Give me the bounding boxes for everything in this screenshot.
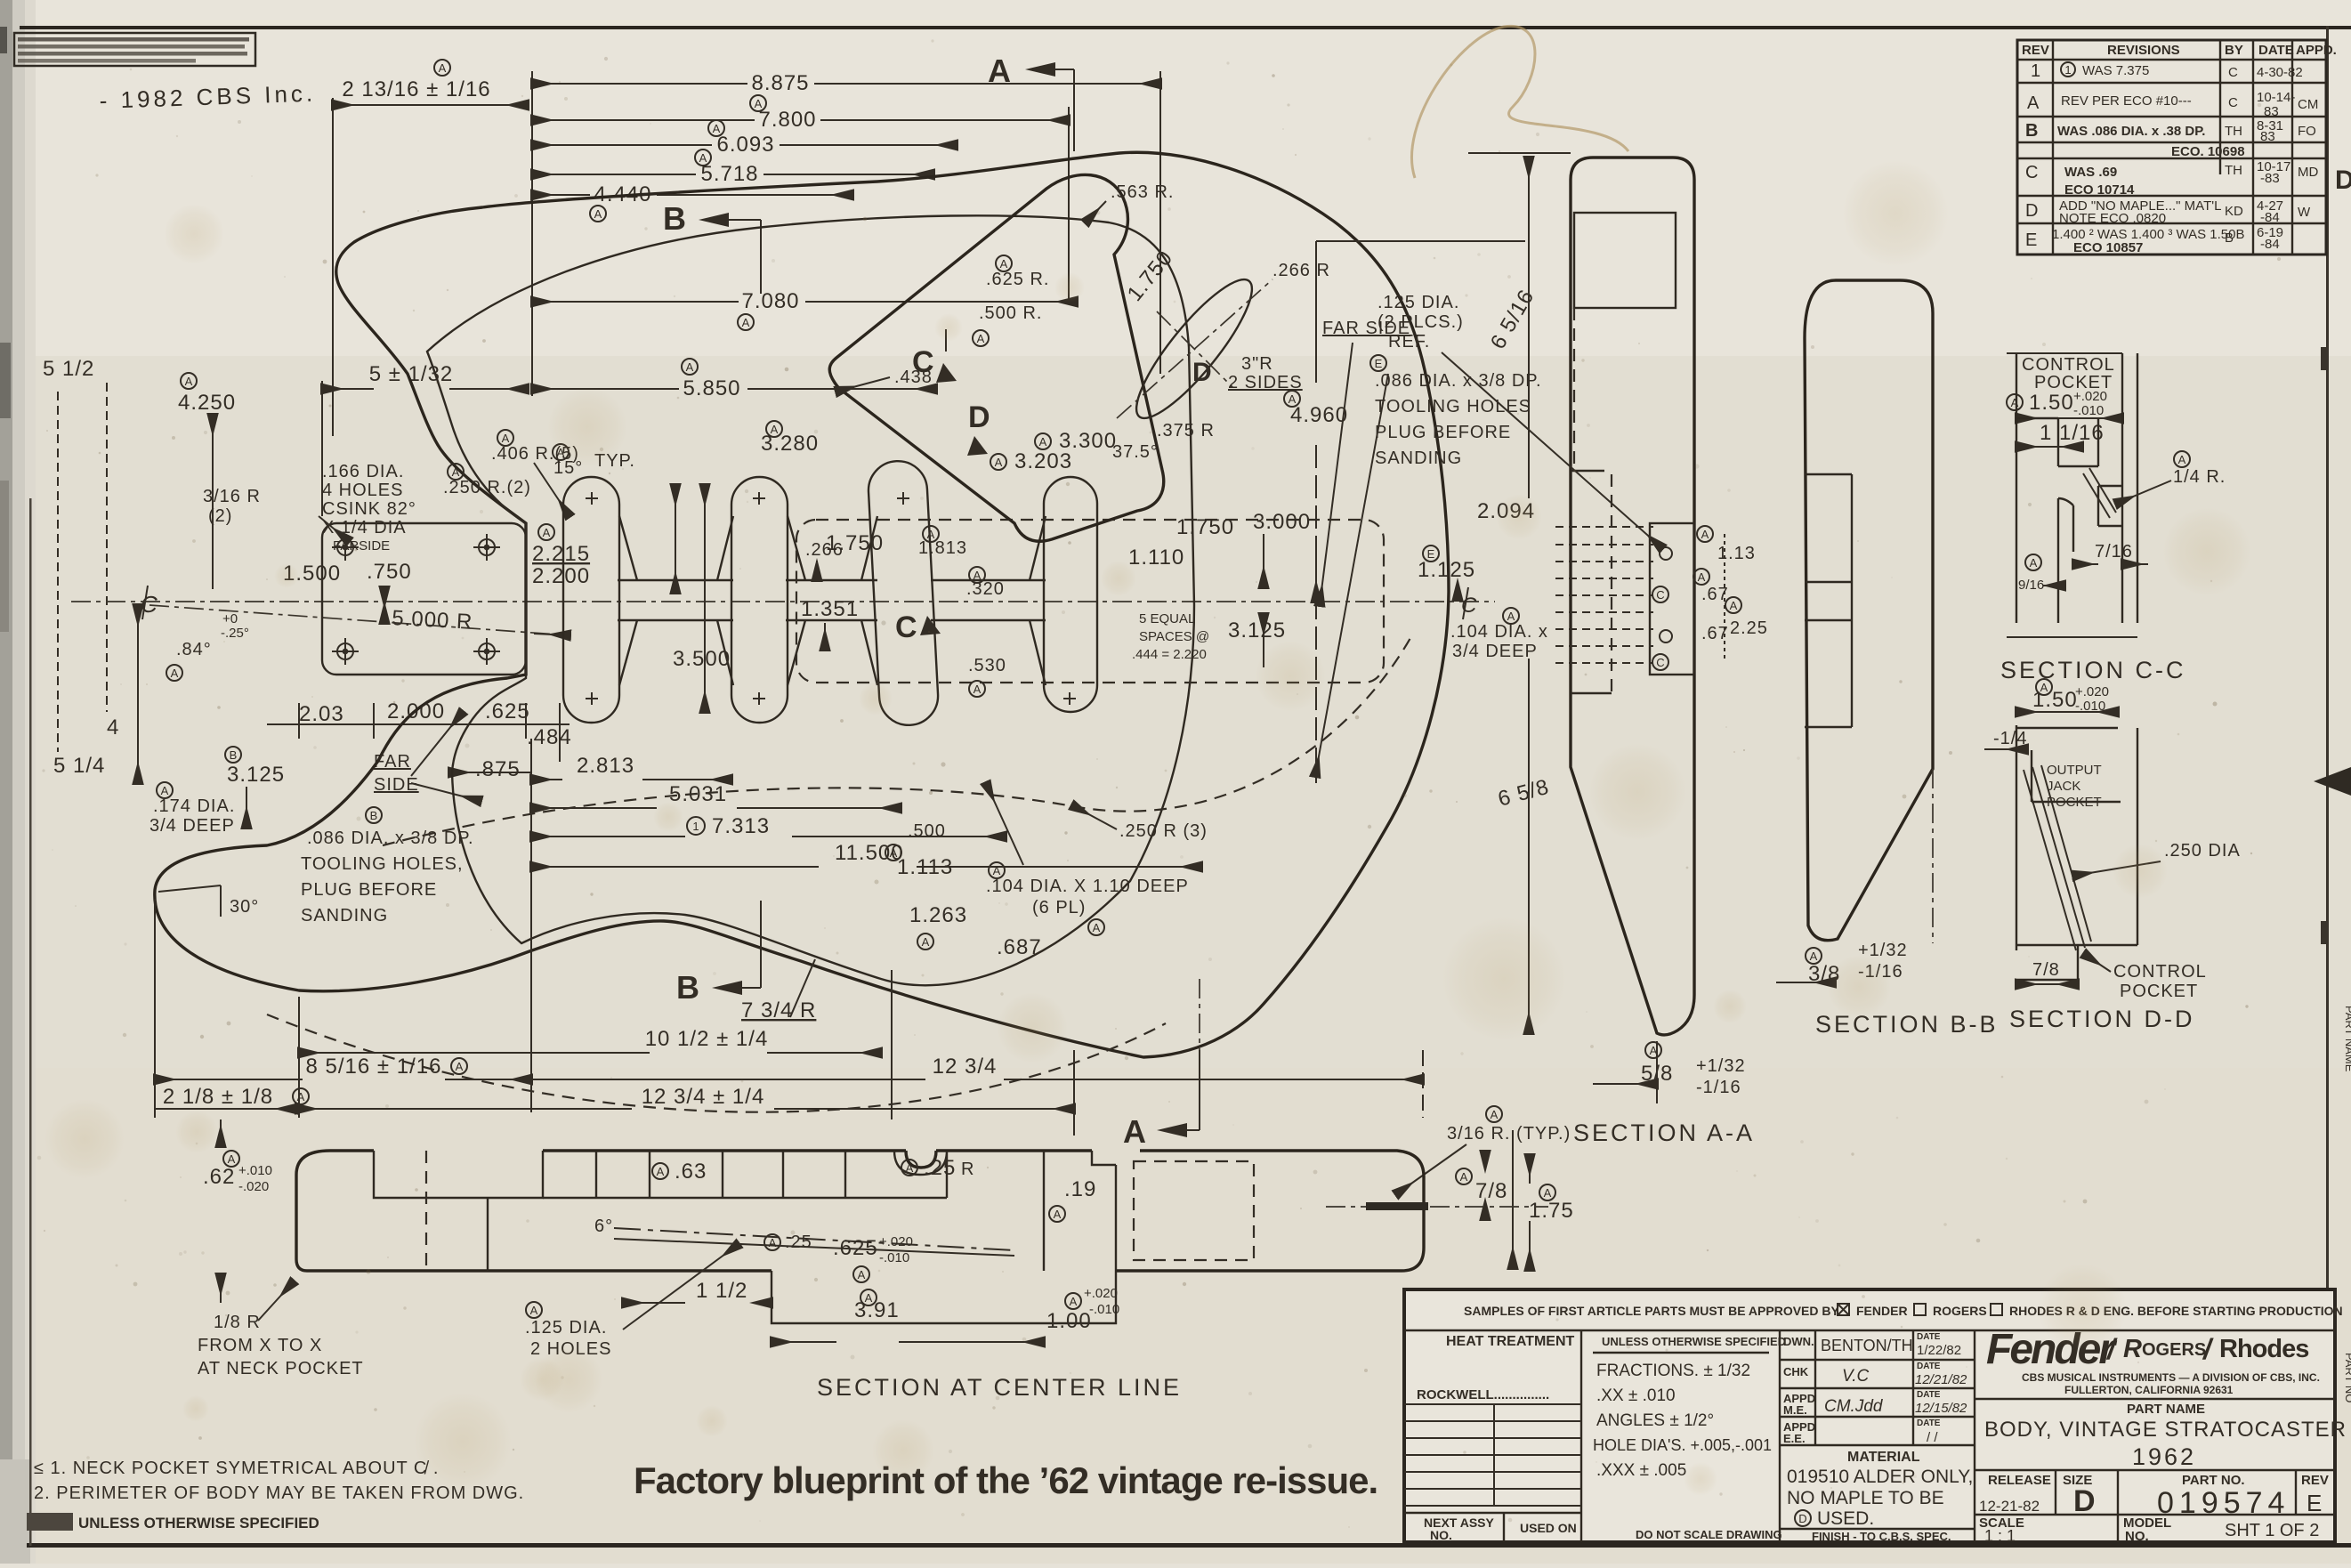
svg-text:CBS MUSICAL INSTRUMENTS — A DI: CBS MUSICAL INSTRUMENTS — A DIVISION OF … [2022, 1371, 2320, 1384]
svg-text:UNLESS OTHERWISE SPECIFIED: UNLESS OTHERWISE SPECIFIED [78, 1515, 319, 1532]
svg-text:FO: FO [2298, 124, 2316, 139]
svg-text:.875: .875 [475, 757, 521, 781]
svg-text:REV: REV [2301, 1473, 2329, 1488]
svg-text:4: 4 [107, 715, 119, 740]
svg-text:11.500: 11.500 [835, 841, 904, 865]
svg-text:DATE: DATE [1917, 1390, 1941, 1400]
svg-text:7 3/4 R: 7 3/4 R [741, 998, 816, 1022]
svg-text:B: B [230, 748, 238, 762]
svg-text:FRACTIONS. ± 1/32: FRACTIONS. ± 1/32 [1596, 1362, 1750, 1380]
svg-text:.375 R: .375 R [1157, 421, 1215, 440]
svg-text:REV PER ECO #10---: REV PER ECO #10--- [2061, 93, 2192, 109]
svg-text:WAS 7.375: WAS 7.375 [2082, 63, 2149, 78]
svg-text:1 1/16: 1 1/16 [2040, 421, 2105, 445]
svg-text:A: A [713, 122, 721, 135]
svg-text:FINISH - TO C.B.S. SPEC.: FINISH - TO C.B.S. SPEC. [1812, 1530, 1951, 1543]
svg-text:2.200: 2.200 [532, 564, 590, 588]
svg-text:E.E.: E.E. [1783, 1432, 1806, 1445]
svg-text:.25: .25 [924, 1156, 956, 1180]
svg-text:7/8: 7/8 [2032, 960, 2060, 980]
svg-text:A: A [977, 332, 985, 345]
svg-text:DATE: DATE [1917, 1332, 1941, 1342]
svg-text:6.093: 6.093 [716, 133, 774, 157]
svg-text:3/16 R: 3/16 R [203, 487, 261, 506]
svg-text:1.263: 1.263 [909, 903, 967, 927]
svg-text:A: A [1491, 1108, 1499, 1121]
svg-text:7.080: 7.080 [741, 289, 799, 313]
svg-text:3.500: 3.500 [673, 647, 731, 671]
svg-text:.438: .438 [894, 368, 933, 387]
svg-text:NO.: NO. [1430, 1528, 1452, 1542]
svg-text:1/8 R: 1/8 R [214, 1313, 261, 1332]
svg-text:-.020: -.020 [238, 1179, 269, 1194]
svg-text:POCKET: POCKET [2120, 982, 2198, 1001]
svg-text:.XX ± .010: .XX ± .010 [1596, 1386, 1676, 1405]
svg-text:A: A [2011, 396, 2019, 409]
svg-text:8.875: 8.875 [751, 71, 809, 95]
svg-text:83: 83 [2260, 129, 2275, 144]
svg-text:(6 PL): (6 PL) [1032, 898, 1086, 917]
svg-text:1: 1 [2031, 61, 2041, 81]
svg-text:C: C [1656, 656, 1664, 669]
svg-text:DATE: DATE [2258, 43, 2294, 58]
svg-text:3/4 DEEP: 3/4 DEEP [1452, 642, 1538, 661]
svg-text:A: A [1460, 1170, 1468, 1184]
svg-text:R: R [961, 1160, 974, 1179]
svg-text:X 1/4 DIA: X 1/4 DIA [322, 518, 407, 537]
svg-text:10 1/2 ± 1/4: 10 1/2 ± 1/4 [645, 1027, 769, 1051]
svg-text:5.031: 5.031 [669, 782, 727, 806]
svg-text:1.110: 1.110 [1128, 546, 1184, 570]
svg-text:7/16: 7/16 [2095, 542, 2133, 562]
svg-text:ROCKWELL...............: ROCKWELL............... [1417, 1387, 1549, 1402]
svg-text:.174 DIA.: .174 DIA. [153, 796, 235, 816]
svg-text:ECO 10857: ECO 10857 [2073, 240, 2143, 255]
svg-text:+.020: +.020 [879, 1234, 913, 1249]
svg-text:.086 DIA. x 3/8 DP.: .086 DIA. x 3/8 DP. [1375, 371, 1542, 391]
svg-text:ANGLES ± 1/2°: ANGLES ± 1/2° [1596, 1411, 1714, 1430]
svg-text:12 3/4 ± 1/4: 12 3/4 ± 1/4 [642, 1085, 765, 1109]
svg-text:+.010: +.010 [238, 1163, 272, 1178]
svg-text:8 5/16 ± 1/16: 8 5/16 ± 1/16 [306, 1055, 442, 1079]
svg-text:.484: .484 [527, 725, 572, 749]
svg-text:3.125: 3.125 [227, 763, 285, 787]
svg-text:-.010: -.010 [2073, 403, 2104, 418]
svg-text:A: A [988, 53, 1011, 89]
svg-text:.444 = 2.220: .444 = 2.220 [1132, 647, 1207, 662]
svg-text:3.203: 3.203 [1014, 449, 1072, 473]
svg-text:2 SIDES: 2 SIDES [1228, 373, 1303, 392]
svg-text:.625 R.: .625 R. [986, 270, 1049, 289]
svg-text:+.020: +.020 [1084, 1286, 1118, 1301]
svg-text:SHT 1 OF 2: SHT 1 OF 2 [2225, 1521, 2319, 1540]
svg-text:W: W [2298, 205, 2311, 220]
svg-text:9/16: 9/16 [2018, 578, 2044, 593]
svg-text:37.5°: 37.5° [1112, 442, 1159, 462]
svg-text:5 EQUAL: 5 EQUAL [1139, 611, 1195, 626]
svg-text:R: R [2123, 1335, 2142, 1363]
svg-text:12/21/82: 12/21/82 [1915, 1372, 1967, 1387]
svg-text:A: A [161, 784, 169, 797]
svg-text:FENDER: FENDER [1856, 1304, 1908, 1318]
svg-text:.500: .500 [908, 821, 946, 841]
svg-text:A: A [771, 423, 779, 436]
svg-text:A: A [1054, 1208, 1062, 1221]
svg-text:1/4 R.: 1/4 R. [2173, 467, 2226, 487]
svg-text:A: A [456, 1060, 464, 1073]
svg-text:CONTROL: CONTROL [2113, 962, 2207, 982]
svg-text:A: A [543, 526, 551, 539]
svg-text:.104 DIA. X 1.10 DEEP: .104 DIA. X 1.10 DEEP [986, 877, 1189, 896]
svg-text:3/16 R. (TYP.): 3/16 R. (TYP.) [1447, 1124, 1571, 1144]
svg-text:.750: .750 [367, 560, 412, 584]
svg-text:SECTION B-B: SECTION B-B [1815, 1011, 1999, 1038]
svg-text:1: 1 [692, 820, 699, 833]
svg-text:SECTION AT CENTER LINE: SECTION AT CENTER LINE [817, 1374, 1182, 1401]
svg-text:1.75: 1.75 [1529, 1199, 1574, 1223]
svg-text:CONTROL: CONTROL [2022, 355, 2115, 375]
svg-text:A: A [594, 207, 602, 221]
svg-text:KD: KD [2225, 204, 2243, 219]
svg-text:A: A [974, 569, 982, 582]
svg-text:.266 R: .266 R [1272, 261, 1330, 280]
svg-text:HOLE DIA'S. +.005,-.001: HOLE DIA'S. +.005,-.001 [1593, 1436, 1772, 1454]
svg-text:-83: -83 [2260, 171, 2280, 186]
svg-text:A: A [755, 97, 763, 110]
svg-text:12 3/4: 12 3/4 [933, 1055, 998, 1079]
svg-text:A: A [1093, 921, 1101, 934]
svg-text:-84: -84 [2260, 210, 2280, 225]
svg-text:CHK: CHK [1783, 1365, 1809, 1378]
svg-text:A: A [2030, 556, 2038, 570]
svg-text:ROGERS: ROGERS [1933, 1304, 1987, 1318]
svg-text:12/15/82: 12/15/82 [1915, 1401, 1967, 1416]
svg-text:OUTPUT: OUTPUT [2047, 763, 2102, 778]
svg-text:5.000 R: 5.000 R [392, 606, 473, 634]
svg-text:30°: 30° [230, 897, 259, 917]
svg-text:D: D [968, 400, 990, 434]
svg-text:(2): (2) [208, 506, 232, 526]
svg-text:REV: REV [2022, 43, 2049, 58]
svg-text:/ /: / / [1927, 1430, 1938, 1445]
svg-text:FARSIDE: FARSIDE [333, 538, 390, 554]
svg-text:BODY, VINTAGE STRATOCASTER: BODY, VINTAGE STRATOCASTER [1984, 1418, 2347, 1442]
svg-text:A: A [1698, 570, 1706, 584]
svg-text:1/22/82: 1/22/82 [1917, 1343, 1961, 1358]
svg-text:A: A [228, 1152, 236, 1166]
svg-text:HEAT TREATMENT: HEAT TREATMENT [1446, 1334, 1575, 1349]
svg-text:SECTION C-C: SECTION C-C [2000, 657, 2186, 683]
svg-text:3.000: 3.000 [1253, 510, 1311, 534]
svg-text:019510 ALDER ONLY,: 019510 ALDER ONLY, [1787, 1467, 1973, 1487]
svg-text:A: A [1544, 1186, 1552, 1200]
svg-text:DO NOT SCALE DRAWING: DO NOT SCALE DRAWING [1636, 1528, 1782, 1541]
svg-text:A: A [2027, 93, 2040, 113]
svg-text:4-30-82: 4-30-82 [2257, 65, 2303, 80]
svg-text:1 1/2: 1 1/2 [696, 1279, 747, 1303]
svg-text:.125 DIA.: .125 DIA. [1377, 293, 1459, 312]
svg-text:7.313: 7.313 [712, 814, 770, 838]
svg-text:C: C [2228, 95, 2238, 110]
svg-text:REVISIONS: REVISIONS [2107, 43, 2180, 58]
svg-text:DWN.: DWN. [1783, 1335, 1814, 1348]
svg-text:B: B [370, 809, 378, 822]
svg-text:FROM X TO X: FROM X TO X [198, 1336, 322, 1355]
svg-text:PLUG BEFORE: PLUG BEFORE [301, 880, 437, 900]
svg-text:E: E [1375, 357, 1383, 370]
svg-text:TH: TH [2225, 124, 2242, 139]
svg-text:SPACES @: SPACES @ [1139, 629, 1209, 644]
svg-text:1962: 1962 [2132, 1443, 2196, 1470]
svg-text:WAS .086 DIA. x .38 DP.: WAS .086 DIA. x .38 DP. [2057, 124, 2205, 139]
svg-text:1.813: 1.813 [918, 538, 967, 558]
svg-text:A: A [1810, 950, 1818, 963]
svg-text:WAS .69: WAS .69 [2064, 165, 2117, 180]
svg-text:POCKET: POCKET [2047, 795, 2102, 810]
svg-text:.250 DIA: .250 DIA [2164, 841, 2241, 861]
svg-text:-.010: -.010 [879, 1250, 909, 1265]
svg-text:CM.Jdd: CM.Jdd [1824, 1397, 1884, 1416]
svg-text:.250 R (3): .250 R (3) [1119, 821, 1208, 841]
svg-text:1.125: 1.125 [1418, 558, 1475, 582]
svg-text:+0: +0 [222, 611, 238, 626]
svg-text:A: A [1123, 1113, 1146, 1150]
svg-text:-1/16: -1/16 [1696, 1078, 1741, 1097]
svg-text:DATE: DATE [1917, 1418, 1941, 1428]
svg-text:.19: .19 [1064, 1177, 1096, 1201]
svg-text:-.25°: -.25° [221, 626, 249, 641]
svg-text:A: A [1701, 528, 1709, 541]
svg-text:A: A [2178, 453, 2186, 466]
svg-text:4.960: 4.960 [1290, 403, 1348, 427]
svg-text:A: A [995, 456, 1003, 469]
svg-text:A: A [974, 683, 982, 696]
svg-text:.563 R.: .563 R. [1111, 182, 1174, 202]
svg-text:A: A [865, 1291, 873, 1305]
svg-text:BY: BY [2225, 43, 2243, 58]
svg-text:A: A [530, 1304, 538, 1317]
svg-text:SANDING: SANDING [1375, 449, 1462, 468]
svg-text:A: A [1507, 610, 1515, 623]
svg-text:E: E [2307, 1490, 2322, 1516]
svg-text:A: A [1070, 1295, 1078, 1308]
svg-text:NOTE ECO .0820: NOTE ECO .0820 [2059, 211, 2166, 226]
svg-text:(2 PLCS.): (2 PLCS.) [1377, 312, 1464, 332]
svg-text:CM: CM [2298, 97, 2318, 112]
svg-text:.62: .62 [203, 1165, 235, 1189]
svg-text:.104 DIA. x: .104 DIA. x [1450, 622, 1548, 642]
svg-text:SECTION D-D: SECTION D-D [2009, 1006, 2195, 1032]
svg-text:5 1/4: 5 1/4 [53, 754, 105, 778]
svg-text:C: C [895, 610, 917, 644]
svg-text:.125 DIA.: .125 DIA. [525, 1318, 607, 1338]
svg-text:A: A [1730, 599, 1738, 612]
svg-text:NO.: NO. [2125, 1529, 2149, 1544]
svg-text:3"R: 3"R [1241, 354, 1273, 374]
svg-text:.687: .687 [997, 935, 1042, 959]
svg-text:E: E [2025, 230, 2038, 250]
svg-text:1 : 1: 1 : 1 [1984, 1527, 2016, 1545]
svg-text:RELEASE: RELEASE [1988, 1473, 2051, 1488]
svg-text:2.813: 2.813 [577, 754, 634, 778]
svg-text:PART NAME: PART NAME [2127, 1402, 2205, 1417]
svg-text:CSINK 82°: CSINK 82° [322, 499, 416, 519]
svg-text:A: A [906, 1161, 914, 1175]
svg-text:AT NECK POCKET: AT NECK POCKET [198, 1359, 364, 1378]
svg-text:.530: .530 [968, 656, 1006, 675]
svg-text:4.250: 4.250 [178, 391, 236, 415]
svg-text:BENTON/TH: BENTON/TH [1821, 1337, 1913, 1354]
svg-text:1.750: 1.750 [1176, 515, 1234, 539]
svg-text:A: A [686, 360, 694, 374]
svg-text:.25: .25 [785, 1233, 812, 1252]
svg-text:.625: .625 [485, 699, 530, 723]
svg-text:USED ON: USED ON [1520, 1521, 1577, 1535]
svg-text:.XXX ± .005: .XXX ± .005 [1596, 1461, 1686, 1480]
svg-text:A: A [502, 432, 510, 445]
svg-text:TH: TH [2225, 163, 2242, 178]
svg-text:SAMPLES OF FIRST ARTICLE PARTS: SAMPLES OF FIRST ARTICLE PARTS MUST BE A… [1464, 1304, 1840, 1318]
svg-text:1.351: 1.351 [801, 597, 859, 621]
svg-text:+.020: +.020 [2073, 389, 2107, 404]
svg-text:C: C [2025, 163, 2039, 182]
svg-text:B: B [2225, 230, 2234, 246]
svg-text:SECTION A-A: SECTION A-A [1573, 1119, 1755, 1146]
svg-text:5 1/2: 5 1/2 [43, 357, 94, 381]
svg-text:APPD.: APPD. [2296, 43, 2337, 58]
svg-text:.086 DIA. x 3/8 DP.: .086 DIA. x 3/8 DP. [307, 828, 474, 848]
svg-text:A: A [742, 316, 750, 329]
svg-text:12-21-82: 12-21-82 [1979, 1498, 2040, 1515]
svg-text:REF.: REF. [1388, 332, 1430, 352]
svg-text:Rhodes: Rhodes [2219, 1335, 2308, 1363]
svg-text:A: A [171, 667, 179, 680]
svg-text:2.03: 2.03 [299, 702, 344, 726]
svg-text:USED.: USED. [1817, 1508, 1874, 1529]
svg-text:A: A [452, 465, 460, 479]
svg-text:D: D [2335, 166, 2351, 195]
svg-text:83: 83 [2264, 104, 2279, 119]
svg-text:5.850: 5.850 [683, 376, 740, 400]
svg-text:A: A [858, 1268, 866, 1281]
svg-text:2 1/8 ± 1/8: 2 1/8 ± 1/8 [163, 1085, 273, 1109]
svg-text:2 13/16 ± 1/16: 2 13/16 ± 1/16 [342, 77, 490, 101]
svg-text:1: 1 [2064, 63, 2071, 77]
svg-text:1.50: 1.50 [2032, 688, 2078, 712]
svg-text:NO MAPLE TO BE: NO MAPLE TO BE [1787, 1488, 1944, 1508]
svg-text:D: D [2073, 1484, 2096, 1518]
svg-text:DATE: DATE [1917, 1362, 1941, 1371]
svg-text:PLUG BEFORE: PLUG BEFORE [1375, 423, 1511, 442]
svg-text:6°: 6° [594, 1216, 613, 1236]
svg-text:-.010: -.010 [1089, 1302, 1119, 1317]
svg-text:7/8: 7/8 [1475, 1179, 1507, 1203]
svg-text:A: A [1039, 435, 1047, 449]
svg-text:A: A [439, 61, 447, 75]
svg-text:.63: .63 [675, 1160, 707, 1184]
svg-text:3/4 DEEP: 3/4 DEEP [149, 816, 235, 836]
svg-text:D: D [1192, 358, 1212, 387]
svg-text:A: A [769, 1236, 777, 1249]
svg-text:B: B [2025, 121, 2039, 141]
svg-text:1.13: 1.13 [1717, 544, 1756, 563]
svg-text:4 HOLES: 4 HOLES [322, 481, 403, 500]
svg-text:B: B [676, 969, 699, 1006]
svg-text:10-14-: 10-14- [2257, 90, 2295, 105]
svg-text:-1/4: -1/4 [1993, 729, 2027, 748]
svg-text:7.800: 7.800 [758, 108, 816, 132]
svg-text:A: A [1000, 257, 1008, 271]
svg-text:+.020: +.020 [2075, 684, 2109, 699]
svg-text:.266: .266 [805, 540, 844, 560]
svg-text:≤ 1. NECK POCKET SYMETRICAL: ≤ 1. NECK POCKET SYMETRICAL ABOUT C̸ . [34, 1459, 440, 1478]
svg-text:5.718: 5.718 [700, 162, 758, 186]
svg-text:A: A [657, 1165, 665, 1178]
svg-text:TOOLING HOLES: TOOLING HOLES [1375, 397, 1531, 416]
svg-text:OGERS: OGERS [2142, 1340, 2206, 1360]
svg-text:ECO 10714: ECO 10714 [2064, 182, 2135, 198]
svg-text:D: D [1798, 1512, 1806, 1525]
svg-text:M.E.: M.E. [1783, 1403, 1807, 1417]
svg-text:A: A [185, 375, 193, 388]
svg-text:ECO. 10698: ECO. 10698 [2171, 144, 2245, 159]
svg-text:A: A [922, 935, 930, 949]
svg-text:JACK: JACK [2047, 779, 2080, 794]
svg-text:A: A [699, 151, 707, 165]
svg-text:TOOLING HOLES,: TOOLING HOLES, [301, 854, 464, 874]
svg-text:1.50: 1.50 [2029, 391, 2074, 415]
svg-text:SANDING: SANDING [301, 906, 388, 925]
svg-text:PART NAME: PART NAME [2343, 1006, 2351, 1072]
svg-text:MD: MD [2298, 165, 2318, 180]
svg-text:.84°: .84° [176, 640, 212, 659]
svg-text:+1/32: +1/32 [1696, 1056, 1746, 1076]
svg-text:.166 DIA.: .166 DIA. [322, 462, 404, 481]
svg-text:3.125: 3.125 [1228, 618, 1286, 643]
svg-text:1.00: 1.00 [1046, 1309, 1092, 1333]
svg-text:PART NO: PART NO [2343, 1353, 2351, 1402]
svg-text:D: D [2025, 201, 2039, 221]
svg-text:.500 R.: .500 R. [979, 303, 1042, 323]
svg-text:.250 R.(2): .250 R.(2) [443, 478, 531, 497]
svg-text:2.215: 2.215 [532, 542, 590, 566]
svg-text:V.C: V.C [1842, 1367, 1870, 1386]
svg-text:Factory blueprint of the ’62 v: Factory blueprint of the ’62 vintage re-… [634, 1459, 1377, 1501]
svg-text:FULLERTON, CALIFORNIA 92631: FULLERTON, CALIFORNIA 92631 [2064, 1384, 2234, 1396]
svg-text:C: C [2228, 65, 2238, 80]
svg-text:SIDE: SIDE [374, 775, 419, 795]
svg-text:C: C [1656, 588, 1664, 602]
svg-text:-84: -84 [2260, 237, 2280, 252]
svg-text:B: B [663, 200, 686, 237]
svg-text:MATERIAL: MATERIAL [1847, 1450, 1920, 1465]
svg-text:2.25: 2.25 [1730, 618, 1768, 638]
